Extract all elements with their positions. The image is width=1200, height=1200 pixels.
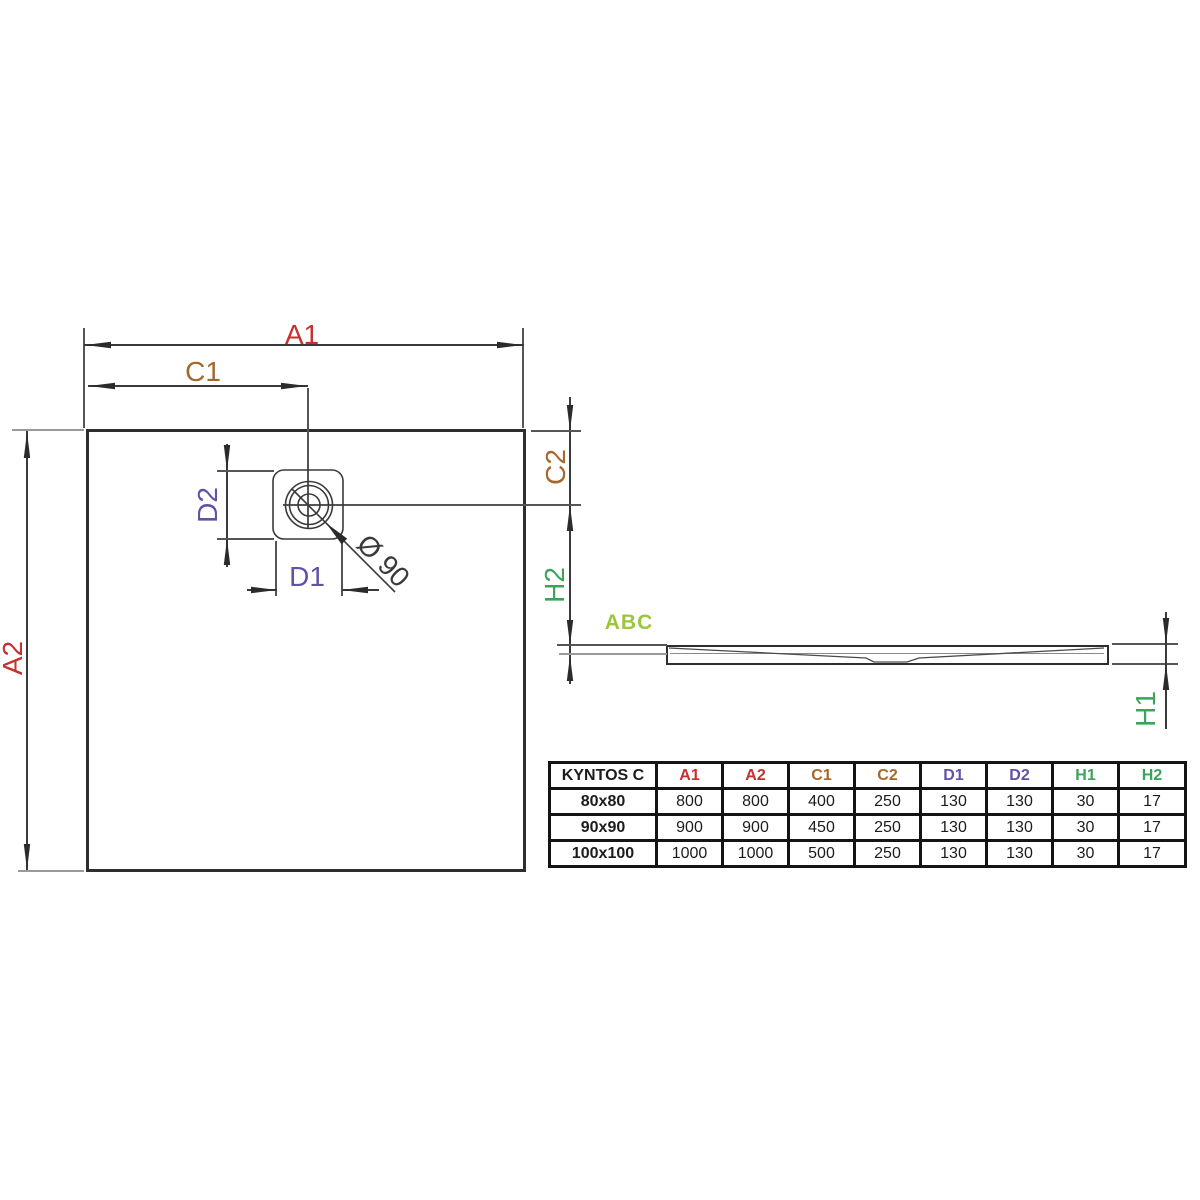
table-row: 90x90 900 900 450 250 130 130 30 17 xyxy=(550,815,1186,841)
table-cell: 130 xyxy=(987,789,1053,815)
table-header-h1: H1 xyxy=(1053,763,1119,789)
table-cell-size: 90x90 xyxy=(550,815,657,841)
dimension-line-c2-h2 xyxy=(569,397,571,684)
dim-label-d1: D1 xyxy=(289,563,325,591)
table-cell: 900 xyxy=(723,815,789,841)
table-header-c2: C2 xyxy=(855,763,921,789)
table-cell: 30 xyxy=(1053,815,1119,841)
table-cell: 800 xyxy=(657,789,723,815)
dimensions-table: KYNTOS C A1 A2 C1 C2 D1 D2 H1 H2 80x80 8… xyxy=(548,761,1187,868)
table-cell: 17 xyxy=(1119,815,1186,841)
dim-label-a1: A1 xyxy=(285,321,319,349)
tick-line-d2-top xyxy=(217,470,274,472)
table-cell: 250 xyxy=(855,841,921,867)
table-header-h2: H2 xyxy=(1119,763,1186,789)
table-row: 80x80 800 800 400 250 130 130 30 17 xyxy=(550,789,1186,815)
extension-line-h1-bottom xyxy=(1112,663,1178,665)
dimension-line-d2 xyxy=(226,444,228,567)
dim-label-c1: C1 xyxy=(185,358,221,386)
brand-watermark: ABC xyxy=(605,611,654,635)
table-cell-size: 100x100 xyxy=(550,841,657,867)
table-header-row: KYNTOS C A1 A2 C1 C2 D1 D2 H1 H2 xyxy=(550,763,1186,789)
table-cell: 130 xyxy=(921,789,987,815)
extension-line-a2-bottom xyxy=(18,870,84,872)
table-header-c1: C1 xyxy=(789,763,855,789)
table-cell: 900 xyxy=(657,815,723,841)
table-header-d2: D2 xyxy=(987,763,1053,789)
table-cell: 30 xyxy=(1053,789,1119,815)
table-cell: 130 xyxy=(921,841,987,867)
table-row: 100x100 1000 1000 500 250 130 130 30 17 xyxy=(550,841,1186,867)
drain-center-line xyxy=(283,504,581,506)
dimension-stub-d1-left xyxy=(247,589,277,591)
tick-line-c2-top xyxy=(531,430,581,432)
extension-line-d1-right xyxy=(341,541,343,596)
table-header-a1: A1 xyxy=(657,763,723,789)
side-edge-line-left xyxy=(559,653,667,655)
extension-line-a2-top xyxy=(12,429,84,431)
table-cell: 500 xyxy=(789,841,855,867)
dim-label-d2: D2 xyxy=(194,487,222,523)
extension-line-a1-right xyxy=(522,328,524,428)
technical-drawing-canvas: A1 C1 A2 C2 D2 D1 Ø 90 H2 ABC H1 xyxy=(0,0,1200,1200)
dim-label-h2: H2 xyxy=(541,567,569,603)
table-cell: 30 xyxy=(1053,841,1119,867)
table-header-d1: D1 xyxy=(921,763,987,789)
table-cell: 450 xyxy=(789,815,855,841)
dim-label-a2: A2 xyxy=(0,641,27,675)
table-cell: 130 xyxy=(921,815,987,841)
extension-line-a1-left xyxy=(83,328,85,428)
tick-line-d2-bottom xyxy=(217,538,274,540)
table-cell: 130 xyxy=(987,815,1053,841)
table-cell: 17 xyxy=(1119,841,1186,867)
side-top-surface-line-left xyxy=(557,644,667,646)
table-cell: 250 xyxy=(855,815,921,841)
table-cell: 17 xyxy=(1119,789,1186,815)
table-cell: 400 xyxy=(789,789,855,815)
table-header-model: KYNTOS C xyxy=(550,763,657,789)
table-cell: 130 xyxy=(987,841,1053,867)
dim-label-h1: H1 xyxy=(1132,691,1160,727)
shower-tray-plan-outline xyxy=(86,429,526,872)
extension-line-d1-left xyxy=(275,541,277,596)
table-cell-size: 80x80 xyxy=(550,789,657,815)
dimension-stub-d1-right xyxy=(342,589,379,591)
dimension-line-h1 xyxy=(1165,612,1167,729)
side-far-rim-line xyxy=(670,653,1104,654)
extension-line-c1-drain-center xyxy=(307,388,309,528)
extension-line-h1-top xyxy=(1112,643,1178,645)
table-cell: 250 xyxy=(855,789,921,815)
table-header-a2: A2 xyxy=(723,763,789,789)
table-cell: 1000 xyxy=(723,841,789,867)
table-cell: 1000 xyxy=(657,841,723,867)
table-cell: 800 xyxy=(723,789,789,815)
shower-tray-side-outline xyxy=(666,645,1109,665)
dim-label-c2: C2 xyxy=(542,449,570,485)
